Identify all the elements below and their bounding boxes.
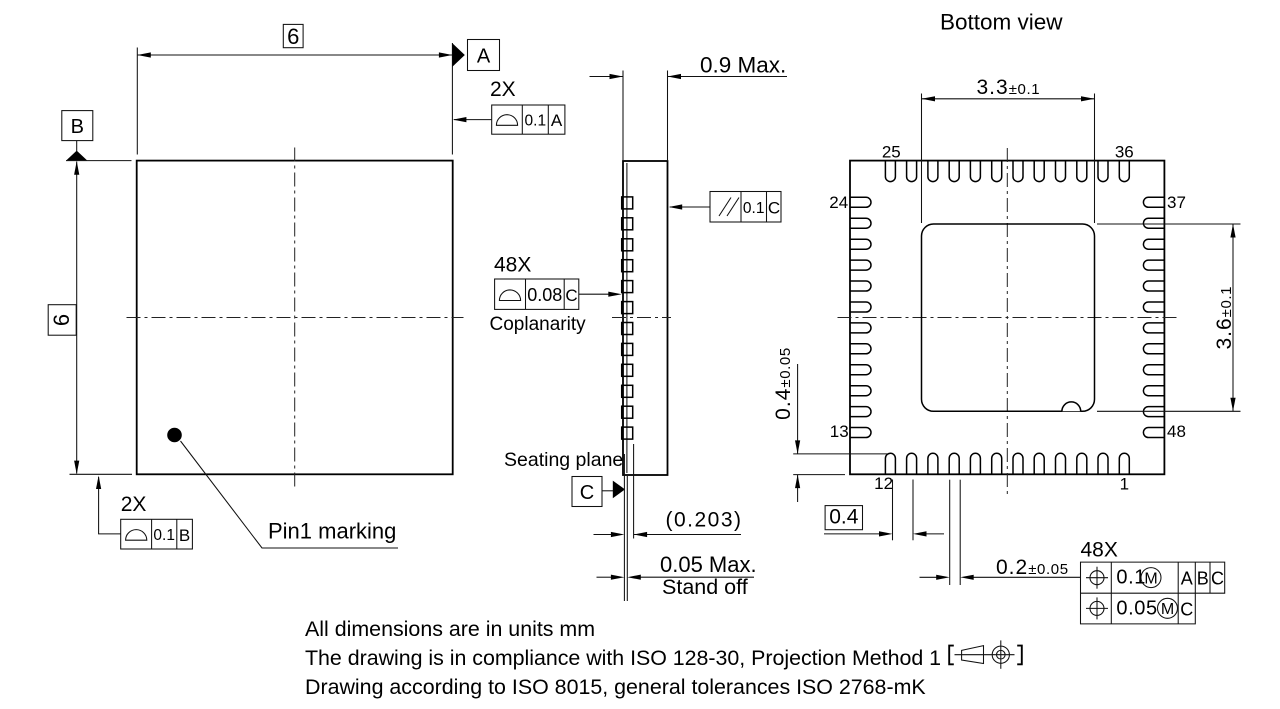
svg-text:0.1: 0.1	[1116, 567, 1146, 589]
svg-text:C: C	[565, 286, 577, 305]
svg-text:Seating plane: Seating plane	[504, 449, 623, 471]
svg-text:A: A	[551, 111, 563, 130]
svg-text:C: C	[1180, 600, 1193, 620]
svg-text:24: 24	[829, 193, 848, 212]
svg-text:13: 13	[830, 422, 849, 441]
svg-text:B: B	[71, 116, 84, 138]
svg-text:Drawing according to ISO 8015,: Drawing according to ISO 8015, general t…	[305, 675, 926, 699]
svg-text:36: 36	[1115, 143, 1134, 162]
svg-text:The drawing is in compliance w: The drawing is in compliance with ISO 12…	[305, 646, 941, 670]
svg-text:B: B	[179, 526, 190, 545]
svg-text:1: 1	[1120, 475, 1129, 494]
svg-text:2X: 2X	[490, 78, 516, 101]
svg-text:(0.203): (0.203)	[666, 509, 743, 532]
svg-text:48X: 48X	[1081, 539, 1118, 562]
svg-text:B: B	[1197, 569, 1209, 589]
svg-text:All dimensions are in units mm: All dimensions are in units mm	[305, 617, 595, 641]
svg-text:C: C	[580, 482, 594, 504]
svg-text:Coplanarity: Coplanarity	[490, 314, 587, 335]
svg-text:A: A	[1181, 569, 1193, 589]
svg-text:A: A	[477, 45, 491, 67]
svg-text:6: 6	[49, 314, 74, 326]
svg-text:0.1: 0.1	[525, 113, 547, 130]
svg-text:6: 6	[287, 24, 299, 49]
svg-text:0.05: 0.05	[1116, 598, 1157, 620]
svg-text:M: M	[1161, 601, 1174, 618]
svg-text:Bottom view: Bottom view	[940, 10, 1063, 35]
svg-text:C: C	[768, 199, 780, 218]
svg-text:12: 12	[874, 474, 893, 493]
svg-text:0.1: 0.1	[153, 527, 175, 544]
svg-text:37: 37	[1167, 193, 1186, 212]
svg-text:0.4: 0.4	[829, 506, 859, 529]
svg-text:M: M	[1144, 570, 1157, 587]
svg-text:C: C	[1211, 569, 1224, 589]
svg-text:0.08: 0.08	[527, 285, 562, 305]
svg-text:Stand off: Stand off	[662, 575, 748, 599]
svg-text:2X: 2X	[121, 493, 147, 516]
svg-text:25: 25	[882, 143, 901, 162]
svg-text:48X: 48X	[494, 254, 531, 277]
svg-text:0.9 Max.: 0.9 Max.	[700, 53, 786, 78]
svg-text:48: 48	[1167, 422, 1186, 441]
svg-text:0.1: 0.1	[743, 200, 765, 217]
svg-text:0.05 Max.: 0.05 Max.	[660, 552, 757, 577]
svg-text:Pin1 marking: Pin1 marking	[268, 519, 396, 544]
